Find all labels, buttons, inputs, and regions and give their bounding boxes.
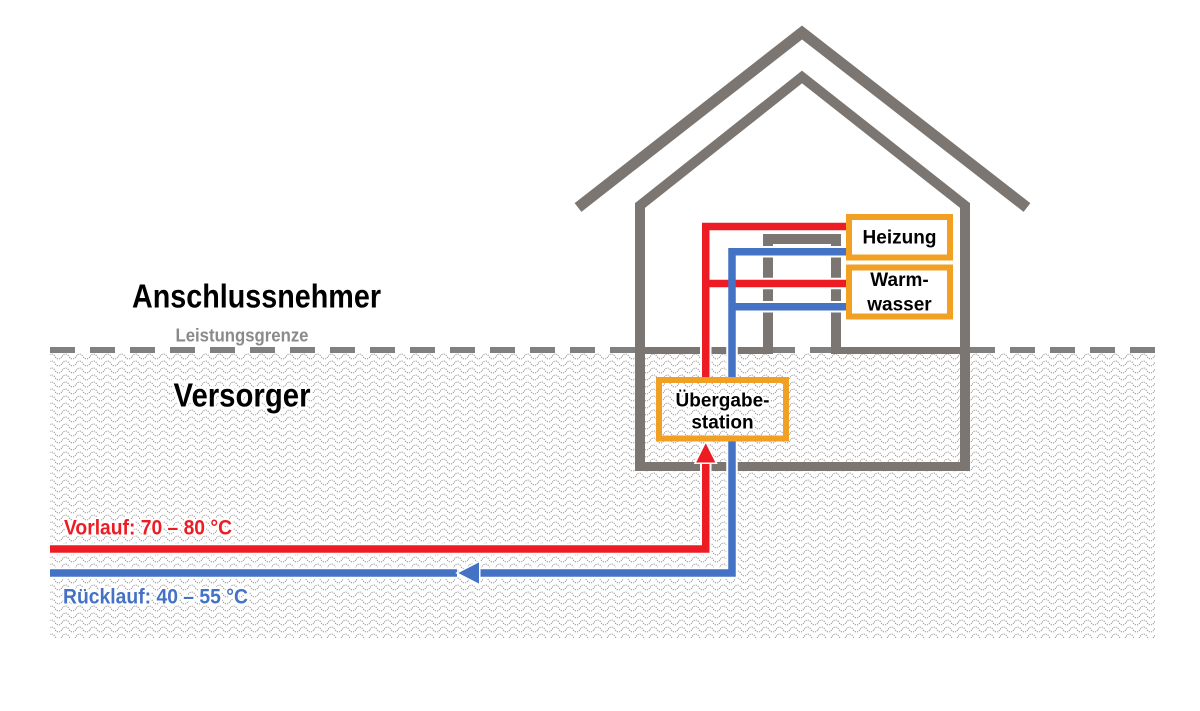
svg-text:Rücklauf: 40 – 55 °C: Rücklauf: 40 – 55 °C: [63, 586, 248, 609]
svg-text:Leistungsgrenze: Leistungsgrenze: [176, 326, 309, 346]
svg-text:Vorlauf: 70 – 80 °C: Vorlauf: 70 – 80 °C: [64, 516, 232, 539]
svg-text:station: station: [691, 413, 753, 434]
svg-text:Anschlussnehmer: Anschlussnehmer: [132, 278, 381, 315]
svg-text:Warm-: Warm-: [870, 270, 928, 291]
svg-text:Heizung: Heizung: [863, 228, 937, 249]
svg-text:Übergabe-: Übergabe-: [676, 391, 770, 412]
svg-text:wasser: wasser: [866, 295, 932, 316]
svg-text:Versorger: Versorger: [174, 376, 311, 413]
